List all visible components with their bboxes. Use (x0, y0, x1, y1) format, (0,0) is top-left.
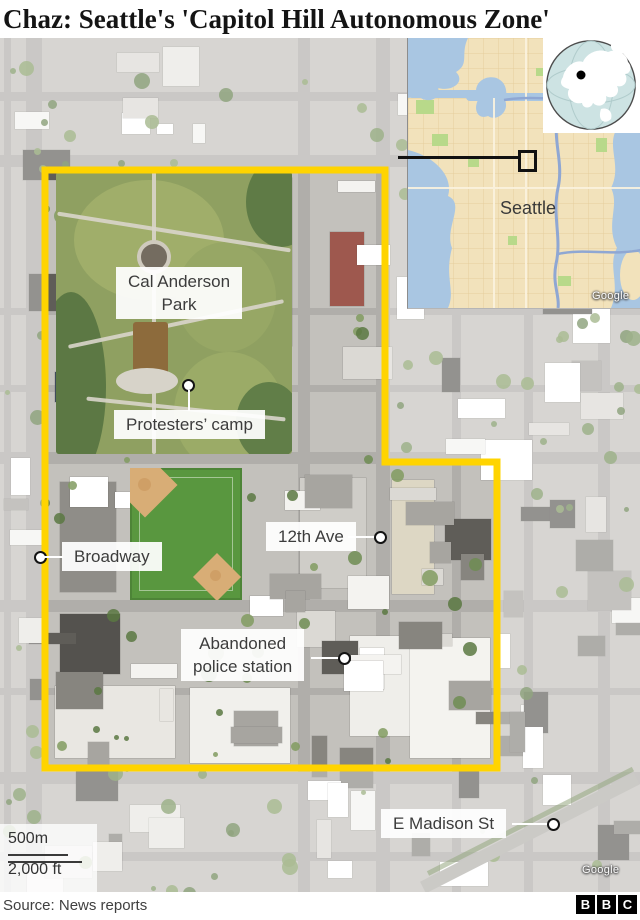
page-title: Chaz: Seattle's 'Capitol Hill Autonomous… (0, 0, 640, 36)
label-e-madison-st: E Madison St (381, 809, 506, 838)
police-connector (311, 657, 339, 659)
madison-marker-dot (547, 818, 560, 831)
inset-google-attribution: Google (592, 290, 629, 302)
ave12-marker-dot (374, 531, 387, 544)
bbc-map-graphic: Chaz: Seattle's 'Capitol Hill Autonomous… (0, 0, 640, 920)
satellite-map: Cal Anderson Park Protesters’ camp Broad… (0, 38, 640, 892)
label-12th-ave: 12th Ave (266, 522, 356, 551)
title-bar: Chaz: Seattle's 'Capitol Hill Autonomous… (0, 0, 640, 38)
footer-bar: Source: News reports B B C (0, 892, 640, 920)
scale-imperial: 2,000 ft (8, 861, 97, 879)
label-police-station: Abandoned police station (181, 629, 304, 681)
police-marker-dot (338, 652, 351, 665)
scale-metric: 500m (8, 830, 97, 848)
camp-connector (188, 390, 190, 411)
seattle-dot (577, 71, 586, 80)
madison-connector (512, 823, 548, 825)
label-protesters-camp: Protesters’ camp (114, 410, 265, 439)
broadway-connector (43, 556, 63, 558)
globe-locator (545, 39, 637, 131)
scale-bar: 500m 2,000 ft (0, 824, 97, 892)
label-broadway: Broadway (62, 542, 162, 571)
label-cal-anderson-park: Cal Anderson Park (116, 267, 242, 319)
source-text: Source: News reports (3, 897, 147, 914)
locator-line (398, 156, 519, 159)
locator-rectangle (518, 150, 537, 172)
map-google-attribution: Google (582, 864, 619, 876)
bbc-logo: B B C (576, 895, 637, 914)
inset-city-label: Seattle (482, 198, 574, 219)
ave12-connector (348, 536, 375, 538)
